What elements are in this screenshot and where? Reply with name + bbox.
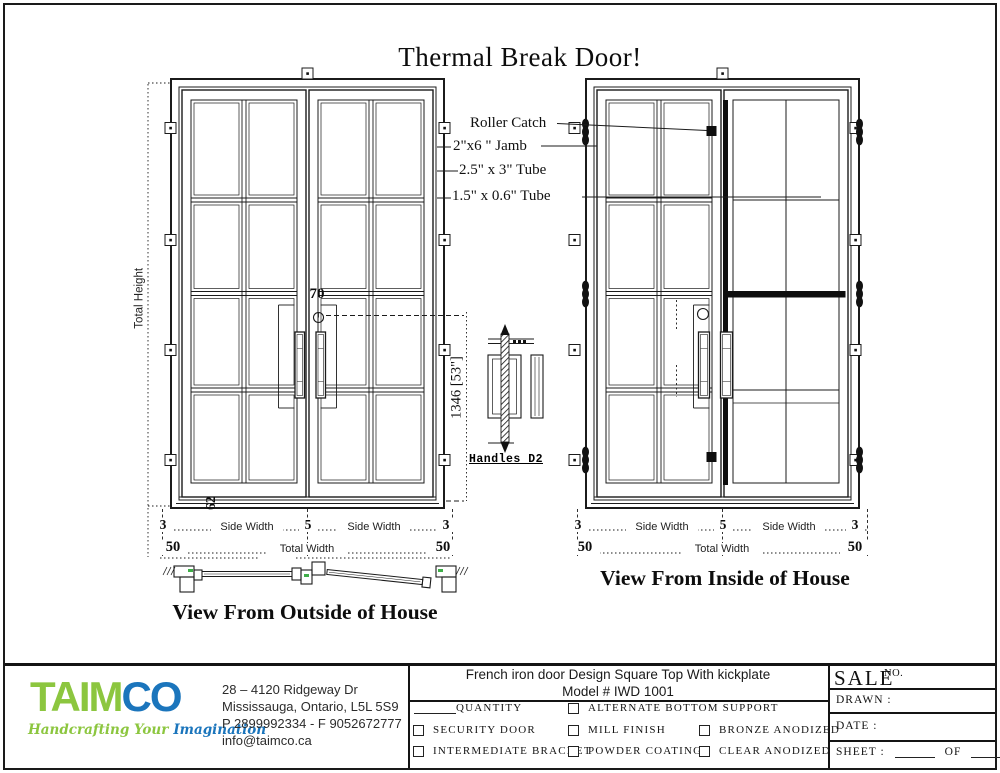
- of-blank-line: [971, 747, 1000, 758]
- checkbox-icon: [699, 746, 710, 757]
- address-line: P 2899992334 - F 9052672777: [222, 715, 402, 732]
- mounting-clip-icon: [439, 235, 450, 246]
- hinge-icon: [856, 447, 863, 474]
- dim-total-width: Total Width: [266, 543, 348, 555]
- lock-cylinder-icon: [698, 309, 709, 320]
- mounting-clip-icon: [850, 345, 861, 356]
- company-address: 28 – 4120 Ridgeway Dr Mississauga, Ontar…: [222, 681, 402, 749]
- dim-side-width-right-inside: Side Width: [753, 521, 825, 533]
- address-line: info@taimco.ca: [222, 732, 402, 749]
- sheet-blank-line: [895, 747, 935, 758]
- weatherstrip-mark: [188, 569, 193, 572]
- dim-side-width-left: Side Width: [211, 521, 283, 533]
- mounting-clip-icon: [165, 455, 176, 466]
- hinge-icon: [582, 447, 589, 474]
- callout-tube-small: 1.5" x 0.6" Tube: [452, 189, 551, 204]
- option-powder-coating: POWDER COATING: [568, 745, 702, 757]
- dim-side-width-right: Side Width: [338, 521, 410, 533]
- inside-view-caption: View From Inside of House: [560, 566, 890, 591]
- option-label: CLEAR ANODIZED: [719, 745, 831, 757]
- option-label: SECURITY DOOR: [433, 724, 536, 736]
- address-line: 28 – 4120 Ridgeway Dr: [222, 681, 402, 698]
- door-handle: [721, 332, 733, 398]
- weatherstrip-mark: [304, 574, 309, 577]
- mounting-clip-icon: [439, 123, 450, 134]
- option-label: BRONZE ANODIZED: [719, 724, 840, 736]
- roller-catch-icon: [707, 452, 717, 462]
- plan-view-drawing: [160, 558, 468, 592]
- tagline-green: Handcrafting Your: [28, 722, 168, 738]
- outside-view-caption: View From Outside of House: [140, 600, 470, 625]
- hinge-icon: [856, 119, 863, 146]
- option-security-door: SECURITY DOOR: [413, 724, 536, 736]
- door-leaf: [597, 90, 721, 497]
- drawing-sheet: Thermal Break Door! Roller Catch 2"x6 " …: [0, 0, 1000, 773]
- option-label: ALTERNATE BOTTOM SUPPORT: [588, 702, 779, 714]
- inside-elevation-drawing: [569, 68, 868, 557]
- handle-side-view: [531, 355, 543, 418]
- drawn-label: DRAWN :: [836, 694, 892, 706]
- hinge-icon: [856, 281, 863, 308]
- dim-side-margin-right: 3: [437, 518, 455, 532]
- dim-side-margin-left: 3: [154, 518, 172, 532]
- page-title: Thermal Break Door!: [280, 42, 760, 73]
- kickplate-bracket-bar: [727, 291, 846, 298]
- address-line: Mississauga, Ontario, L5L 5S9: [222, 698, 402, 715]
- drawing-title: French iron door Design Square Top With …: [410, 667, 826, 682]
- option-quantity: QUANTITY: [414, 702, 522, 714]
- callout-jamb: 2"x6 " Jamb: [453, 139, 527, 154]
- mounting-clip-icon: [165, 235, 176, 246]
- dim-side-margin-left-inside: 3: [569, 518, 587, 532]
- dim-handle-spacing: 70: [302, 287, 332, 303]
- mounting-clip-icon: [569, 455, 580, 466]
- mounting-clip-icon: [165, 123, 176, 134]
- checkbox-icon: [568, 746, 579, 757]
- option-label: QUANTITY: [456, 702, 522, 714]
- door-handle: [699, 332, 710, 398]
- roller-catch-icon: [707, 126, 717, 136]
- logo-text-blue: CO: [122, 673, 181, 720]
- checkbox-icon: [568, 703, 579, 714]
- checkbox-icon: [413, 725, 424, 736]
- dim-side-width-left-inside: Side Width: [626, 521, 698, 533]
- dim-frame-ext-left-inside: 50: [570, 540, 600, 555]
- date-row-rule: [828, 740, 995, 742]
- taimco-logo: TAIMCO: [30, 676, 181, 718]
- option-label: MILL FINISH: [588, 724, 666, 736]
- door-leaf: [182, 90, 306, 497]
- option-intermediate-bracket: INTERMEDIATE BRACKET: [413, 745, 592, 757]
- sale-no-label: NO.: [884, 668, 903, 679]
- handle-detail-label: Handles D2: [468, 453, 544, 466]
- handle-detail-drawing: [488, 324, 543, 453]
- outside-elevation-drawing: [162, 68, 453, 557]
- handle-grip-section: [501, 334, 509, 442]
- dim-total-width-inside: Total Width: [681, 543, 763, 555]
- mounting-clip-icon: [569, 235, 580, 246]
- mounting-clip-icon: [165, 345, 176, 356]
- checkbox-icon: [568, 725, 579, 736]
- dim-total-height: Total Height: [134, 238, 147, 358]
- sheet-label: SHEET :: [836, 746, 885, 758]
- drawing-linework: [0, 0, 1000, 662]
- option-alternate-bottom-support: ALTERNATE BOTTOM SUPPORT: [568, 702, 779, 714]
- dim-frame-ext-right: 50: [428, 540, 458, 555]
- option-label: POWDER COATING: [588, 745, 702, 757]
- of-label: OF: [945, 746, 962, 758]
- mounting-clip-icon: [850, 235, 861, 246]
- date-label: DATE :: [836, 720, 877, 732]
- mounting-clip-icon: [439, 455, 450, 466]
- dim-center-gap: 5: [299, 518, 317, 532]
- dim-handle-height: 1346 [53"]: [449, 323, 466, 453]
- dim-frame-ext-right-inside: 50: [840, 540, 870, 555]
- dim-center-gap-inside: 5: [714, 518, 732, 532]
- option-bronze-anodized: BRONZE ANODIZED: [699, 724, 840, 736]
- mounting-clip-icon: [569, 345, 580, 356]
- dim-side-margin-right-inside: 3: [846, 518, 864, 532]
- option-mill-finish: MILL FINISH: [568, 724, 666, 736]
- dim-kick-height: 62: [204, 488, 218, 518]
- weatherstrip-mark: [438, 569, 443, 572]
- checkbox-icon: [413, 746, 424, 757]
- dim-frame-ext-left: 50: [158, 540, 188, 555]
- drawing-model: Model # IWD 1001: [410, 684, 826, 699]
- logo-text-green: TAIM: [30, 673, 122, 720]
- door-handle: [316, 332, 326, 398]
- quantity-blank-line: [414, 702, 456, 714]
- open-leaf-plan: [326, 567, 430, 588]
- callout-roller-catch: Roller Catch: [470, 116, 546, 131]
- option-clear-anodized: CLEAR ANODIZED: [699, 745, 831, 757]
- hinge-icon: [582, 119, 589, 146]
- sheet-of-row: SHEET : OF: [836, 746, 1000, 758]
- door-handle: [295, 332, 305, 398]
- drawn-row-rule: [828, 712, 995, 714]
- checkbox-icon: [699, 725, 710, 736]
- hinge-icon: [582, 281, 589, 308]
- callout-tube-large: 2.5" x 3" Tube: [459, 163, 546, 178]
